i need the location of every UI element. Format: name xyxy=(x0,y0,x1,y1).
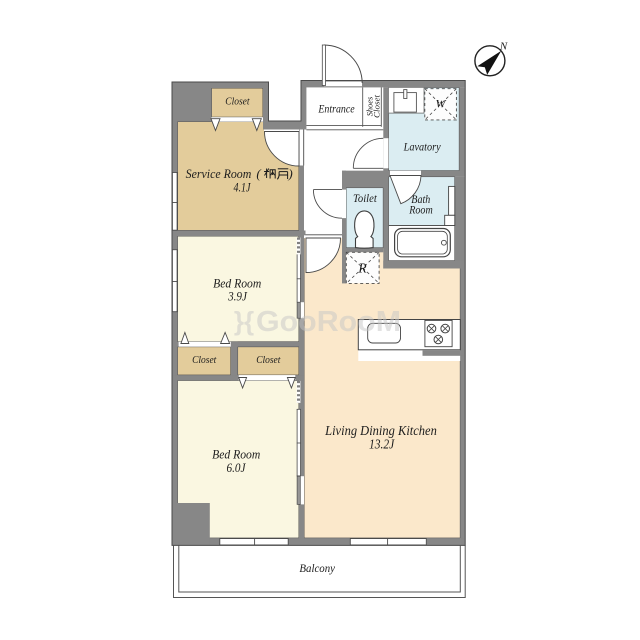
svg-text:W: W xyxy=(436,96,447,110)
svg-text:Closet: Closet xyxy=(192,354,217,366)
svg-text:): ) xyxy=(287,166,292,181)
svg-text:R: R xyxy=(357,261,367,276)
svg-text:Closet: Closet xyxy=(373,94,382,118)
svg-text:Closet: Closet xyxy=(256,354,281,366)
svg-text:GooRooM: GooRooM xyxy=(256,306,401,338)
svg-text:N: N xyxy=(499,41,508,53)
svg-text:Room: Room xyxy=(408,205,432,217)
svg-text:}{: }{ xyxy=(234,306,254,336)
svg-text:6.0J: 6.0J xyxy=(227,460,247,475)
svg-text:Lavatory: Lavatory xyxy=(403,139,442,153)
svg-text:Closet: Closet xyxy=(225,96,250,108)
svg-text:Entrance: Entrance xyxy=(318,101,356,115)
svg-text:13.2J: 13.2J xyxy=(369,437,395,452)
svg-text:Balcony: Balcony xyxy=(299,563,335,575)
svg-text:Toilet: Toilet xyxy=(353,193,378,205)
svg-text:(: ( xyxy=(256,166,261,181)
svg-text:4.1J: 4.1J xyxy=(234,180,252,195)
svg-text:3.9J: 3.9J xyxy=(227,289,248,304)
